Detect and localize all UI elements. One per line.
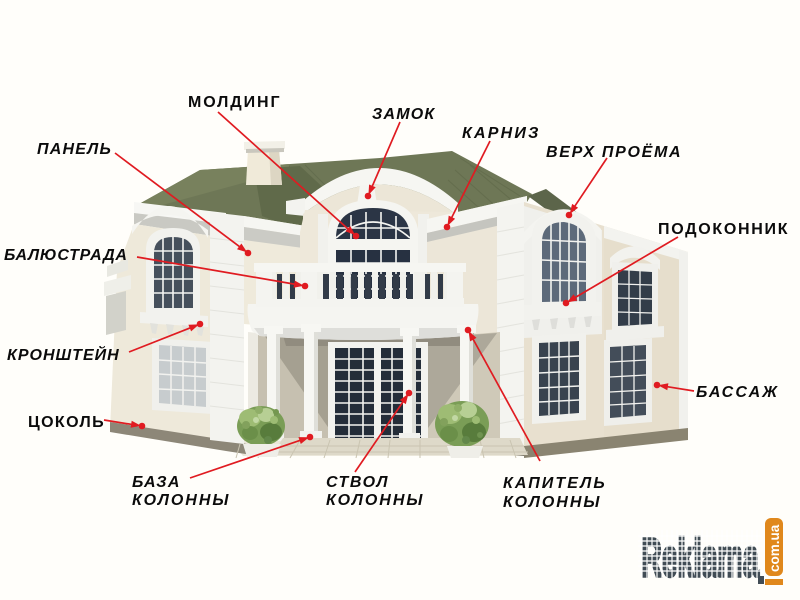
svg-text:БАЗА: БАЗА <box>132 474 181 491</box>
svg-text:КАРНИЗ: КАРНИЗ <box>462 125 541 142</box>
svg-text:ПОДОКОННИК: ПОДОКОННИК <box>658 221 789 238</box>
svg-text:КРОНШТЕЙН: КРОНШТЕЙН <box>7 344 120 364</box>
svg-text:МОЛДИНГ: МОЛДИНГ <box>188 94 281 111</box>
svg-text:СТВОЛ: СТВОЛ <box>326 474 389 491</box>
svg-text:com.ua: com.ua <box>767 524 782 572</box>
svg-text:БАЛЮСТРАДА: БАЛЮСТРАДА <box>4 247 128 264</box>
svg-text:КОЛОННЫ: КОЛОННЫ <box>503 494 601 511</box>
svg-text:ПАНЕЛЬ: ПАНЕЛЬ <box>37 141 112 158</box>
svg-text:КАПИТЕЛЬ: КАПИТЕЛЬ <box>503 475 607 492</box>
svg-text:ЦОКОЛЬ: ЦОКОЛЬ <box>28 414 105 431</box>
svg-text:ЗАМОК: ЗАМОК <box>372 106 435 123</box>
svg-text:КОЛОННЫ: КОЛОННЫ <box>326 492 424 509</box>
svg-text:КОЛОННЫ: КОЛОННЫ <box>132 492 230 509</box>
svg-text:ВЕРХ ПРОЁМА: ВЕРХ ПРОЁМА <box>546 143 682 161</box>
svg-text:БАССАЖ: БАССАЖ <box>696 384 779 401</box>
